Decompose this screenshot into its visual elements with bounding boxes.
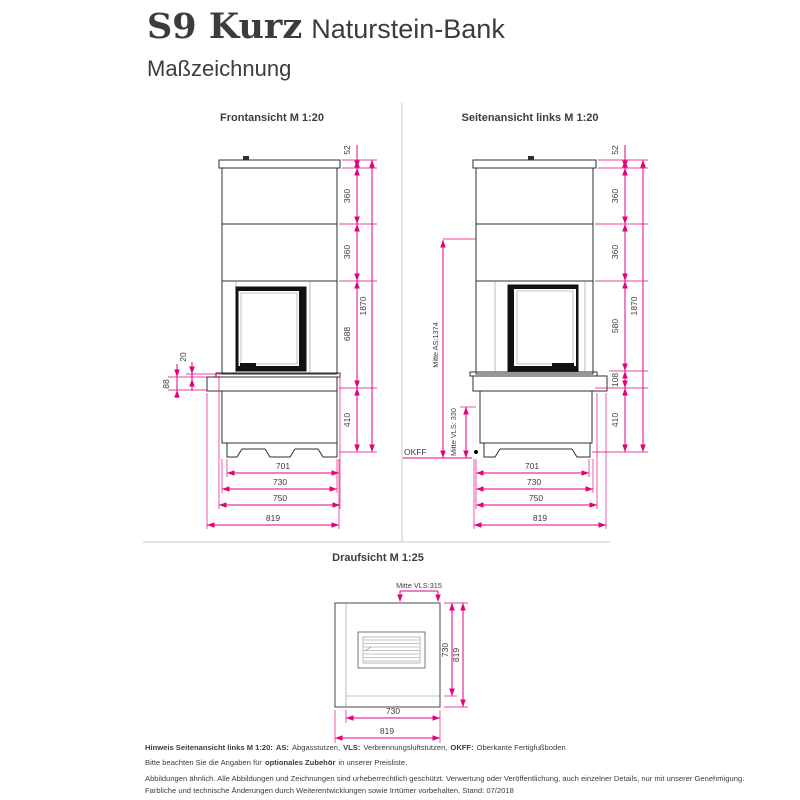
top-view: Draufsicht M 1:25 Mitte VLS:315	[332, 552, 468, 743]
legend-as: AS:	[276, 743, 289, 752]
legend-okff-text: Oberkante Fertigfußboden	[477, 743, 566, 752]
top-view-title: Draufsicht M 1:25	[332, 552, 424, 564]
footer-copyright-line: Abbildungen ähnlich. Alle Abbildungen un…	[145, 774, 744, 783]
dim-730: 730	[273, 477, 287, 487]
legend-okff: OKFF:	[450, 743, 473, 752]
dim-701: 701	[525, 461, 539, 471]
dim-819: 819	[266, 513, 280, 523]
legend-vls: VLS:	[343, 743, 360, 752]
note-text-2: in unserer Preisliste.	[338, 758, 407, 767]
top-slab	[219, 160, 340, 168]
footer-changes-line: Farbliche und technische Änderungen durc…	[145, 786, 514, 795]
front-right-dimensions: 52 360 360 688 410 1870	[339, 145, 377, 452]
dim-1870: 1870	[358, 296, 368, 315]
top-slab	[473, 160, 596, 168]
pedestal	[480, 391, 592, 443]
top-sensor	[528, 156, 534, 160]
dim-88: 88	[161, 379, 171, 389]
dim-750: 750	[529, 493, 543, 503]
side-left-annotations: Mitte AS:1374 Mitte VLS: 330 OKFF	[403, 239, 476, 458]
dim-819: 819	[533, 513, 547, 523]
note-text-1: Bitte beachten Sie die Angaben für	[145, 758, 262, 767]
footer-accessories-note: Bitte beachten Sie die Angaben füroption…	[145, 758, 407, 767]
dim-360b: 360	[610, 245, 620, 259]
air-center-label: Mitte VLS: 330	[449, 408, 458, 456]
dim-410: 410	[610, 413, 620, 427]
dimension-drawing-page: S9 KurzNaturstein-Bank Maßzeichnung Fron…	[0, 0, 800, 800]
door-latch	[240, 363, 256, 367]
dim-20: 20	[178, 352, 188, 362]
dim-depth-819: 819	[451, 648, 461, 662]
dim-52: 52	[342, 145, 352, 155]
note-accessories: optionales Zubehör	[265, 758, 335, 767]
front-view-title: Frontansicht M 1:20	[220, 112, 324, 124]
stone-bench	[473, 376, 607, 391]
connection-marker	[474, 450, 478, 454]
fire-window	[508, 285, 578, 371]
pedestal	[222, 391, 337, 443]
dim-701: 701	[276, 461, 290, 471]
side-view: Seitenansicht links M 1:20	[403, 112, 648, 529]
dim-410: 410	[342, 413, 352, 427]
air-grille	[358, 632, 425, 668]
side-view-title: Seitenansicht links M 1:20	[462, 112, 599, 124]
floor-level-label: OKFF	[404, 447, 427, 457]
dim-depth-730: 730	[440, 643, 450, 657]
dim-750: 750	[273, 493, 287, 503]
stone-bench	[207, 377, 337, 391]
legend-as-text: Abgasstutzen,	[292, 743, 340, 752]
dim-360a: 360	[610, 189, 620, 203]
plinth	[484, 443, 590, 457]
dim-580: 580	[610, 319, 620, 333]
front-view: Frontansicht M 1:20	[161, 112, 377, 529]
legend-vls-text: Verbrennungsluftstutzen,	[363, 743, 447, 752]
plinth	[227, 443, 337, 457]
door-latch	[552, 363, 574, 368]
dim-688: 688	[342, 327, 352, 341]
footer-legend: Hinweis Seitenansicht links M 1:20:AS:Ab…	[145, 743, 566, 752]
dim-52: 52	[610, 145, 620, 155]
top-sensor	[243, 156, 249, 160]
dim-108: 108	[610, 373, 620, 387]
side-right-dimensions: 52 360 360 580 108 410 1870	[592, 145, 648, 452]
dim-360a: 360	[342, 189, 352, 203]
legend-hint: Hinweis Seitenansicht links M 1:20:	[145, 743, 273, 752]
dim-vls-315: Mitte VLS:315	[396, 581, 442, 590]
dim-1870: 1870	[629, 296, 639, 315]
fire-window	[236, 287, 306, 371]
technical-drawing: Frontansicht M 1:20	[0, 0, 800, 800]
dim-width-730: 730	[386, 706, 400, 716]
dim-width-819: 819	[380, 726, 394, 736]
dim-730: 730	[527, 477, 541, 487]
dim-360b: 360	[342, 245, 352, 259]
flue-center-label: Mitte AS:1374	[431, 322, 440, 367]
side-bottom-dimensions: 701 730 750 819	[474, 393, 606, 529]
